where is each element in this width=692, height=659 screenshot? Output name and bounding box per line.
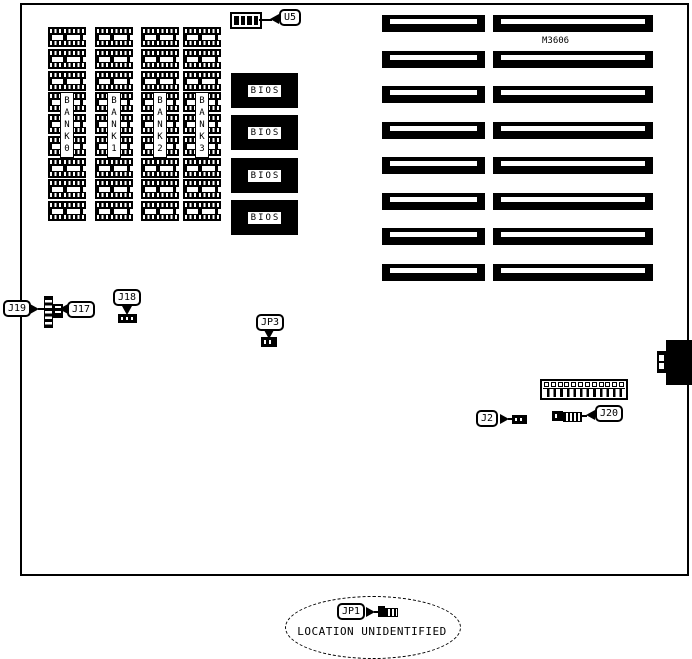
memory-chip <box>141 71 179 91</box>
expansion-slot-segment <box>382 264 485 281</box>
label-j20: J20 <box>595 405 623 422</box>
board-model-label: M3606 <box>542 36 569 46</box>
label-jp1: JP1 <box>337 603 365 620</box>
j20-pin-header-strip <box>540 379 628 400</box>
motherboard-diagram: BANK0BANK1BANK2BANK3 BIOSBIOSBIOSBIOS M3… <box>0 0 692 659</box>
memory-chip <box>48 158 86 178</box>
memory-chip <box>141 27 179 47</box>
pin-box <box>599 382 604 387</box>
pin-box <box>619 382 624 387</box>
expansion-slot-segment <box>493 51 653 68</box>
j20-pointer-arrow-icon <box>586 410 595 420</box>
pin-box <box>564 382 569 387</box>
memory-chip <box>183 27 221 47</box>
memory-chip <box>183 158 221 178</box>
memory-chip <box>95 158 133 178</box>
jp3-pointer-arrow-icon <box>264 330 274 339</box>
label-j18: J18 <box>113 289 141 306</box>
pin-box <box>544 382 549 387</box>
j19-pin-header <box>44 296 53 328</box>
bios-chip: BIOS <box>231 115 298 150</box>
bank-label: BANK0 <box>60 92 74 158</box>
label-j2: J2 <box>476 410 498 427</box>
pin-box <box>558 382 563 387</box>
bios-chip: BIOS <box>231 200 298 235</box>
bios-chip: BIOS <box>231 158 298 193</box>
pin-header-teeth <box>543 388 625 397</box>
location-note: LOCATION UNIDENTIFIED <box>285 625 459 638</box>
keyboard-connector-notch <box>659 363 664 369</box>
pin-box <box>612 382 617 387</box>
bank-label: BANK1 <box>107 92 121 158</box>
memory-chip <box>95 201 133 221</box>
expansion-slot-segment <box>382 122 485 139</box>
bios-chip: BIOS <box>231 73 298 108</box>
j18-pointer-arrow-icon <box>122 306 132 315</box>
u5-connector <box>230 12 262 29</box>
j2-pointer-arrow-icon <box>500 414 509 424</box>
memory-chip <box>183 179 221 199</box>
expansion-slot-segment <box>382 15 485 32</box>
u5-pointer-arrow-icon <box>270 14 279 24</box>
memory-chip <box>141 201 179 221</box>
memory-chip <box>95 49 133 69</box>
pin-box <box>605 382 610 387</box>
expansion-slot-segment <box>382 86 485 103</box>
memory-chip <box>183 201 221 221</box>
jp1-connector-stripes <box>385 608 398 617</box>
j20-connector <box>552 411 563 421</box>
expansion-slot-segment <box>382 193 485 210</box>
expansion-slot-segment <box>493 122 653 139</box>
expansion-slot-segment <box>493 15 653 32</box>
expansion-slot-segment <box>493 86 653 103</box>
pin-box <box>585 382 590 387</box>
keyboard-connector <box>666 340 692 385</box>
memory-chip <box>141 179 179 199</box>
label-jp3: JP3 <box>256 314 284 331</box>
memory-chip <box>95 27 133 47</box>
memory-chip <box>141 158 179 178</box>
pin-box <box>578 382 583 387</box>
memory-chip <box>183 71 221 91</box>
memory-chip <box>141 49 179 69</box>
expansion-slot-segment <box>493 228 653 245</box>
label-j19: J19 <box>3 300 31 317</box>
pin-box <box>551 382 556 387</box>
memory-chip <box>48 201 86 221</box>
expansion-slot-segment <box>493 157 653 174</box>
jp1-connector <box>378 606 385 617</box>
memory-chip <box>48 71 86 91</box>
label-u5: U5 <box>279 9 301 26</box>
keyboard-connector-notch <box>659 355 664 361</box>
j19-pointer-arrow-icon <box>30 304 39 314</box>
j18-connector <box>118 314 137 323</box>
expansion-slot-segment <box>493 264 653 281</box>
memory-chip <box>48 49 86 69</box>
memory-chip <box>95 179 133 199</box>
memory-chip <box>95 71 133 91</box>
bank-label: BANK3 <box>195 92 209 158</box>
memory-chip <box>183 49 221 69</box>
expansion-slot-segment <box>382 51 485 68</box>
pin-box <box>592 382 597 387</box>
memory-chip <box>48 27 86 47</box>
expansion-slot-segment <box>493 193 653 210</box>
pin-header-top-row <box>542 381 626 388</box>
pin-box <box>571 382 576 387</box>
expansion-slot-segment <box>382 157 485 174</box>
memory-chip <box>48 179 86 199</box>
expansion-slot-segment <box>382 228 485 245</box>
j2-connector <box>512 415 527 424</box>
j20-connector-stripes <box>563 412 582 422</box>
j19-pointer-line <box>38 308 45 310</box>
bank-label: BANK2 <box>153 92 167 158</box>
jp1-pointer-arrow-icon <box>366 607 375 617</box>
label-j17: J17 <box>67 301 95 318</box>
